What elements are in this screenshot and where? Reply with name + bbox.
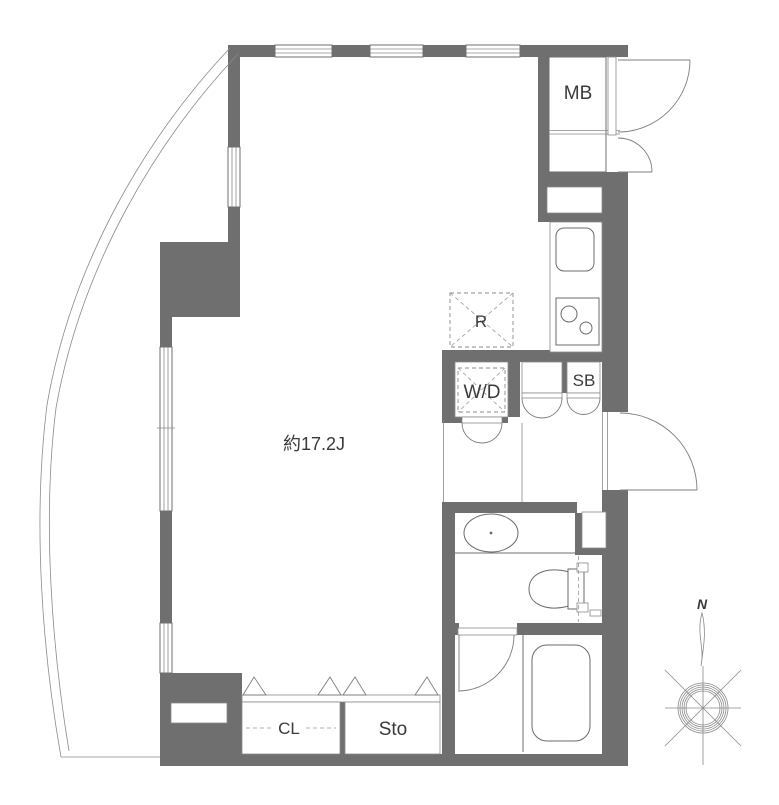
- wall-kitchen-band1: [538, 172, 602, 187]
- wall-cabinet-strip: [575, 513, 582, 553]
- washroom: [455, 512, 606, 553]
- kitchen: R: [450, 187, 602, 352]
- washbasin-drain: [490, 532, 493, 535]
- closet-fold-triangle-1: [243, 677, 266, 695]
- hallway: W/D SB: [444, 362, 601, 502]
- closet-fold-triangle-4: [415, 677, 438, 695]
- closet-fold-triangle-3: [343, 677, 366, 695]
- wall-toilet-top-strip: [575, 548, 603, 555]
- kitchen-niche: [547, 187, 602, 213]
- window-top-3: [466, 45, 520, 57]
- closet-cl: CL: [242, 702, 340, 754]
- stove-burner-small: [580, 322, 592, 334]
- bathroom: [458, 628, 590, 752]
- pillar: [160, 242, 240, 317]
- wd-door-arc-right: [482, 423, 502, 443]
- wall-wd-right: [508, 350, 520, 417]
- bath-door-arc: [458, 635, 514, 691]
- window-left-mid: [157, 347, 175, 511]
- closet-track: [242, 695, 440, 702]
- toilet-bowl: [529, 570, 569, 608]
- storage-sto: Sto: [345, 702, 440, 754]
- shoe-box-label: SB: [573, 371, 596, 390]
- shoe-box: SB: [567, 362, 600, 415]
- wall-left-upper: [228, 45, 240, 242]
- washroom-cabinet: [582, 512, 606, 548]
- stove: [556, 298, 599, 345]
- window-left-upper: [228, 147, 240, 207]
- mb-door-arc-large: [618, 60, 690, 132]
- wd-door-arc-left: [462, 423, 482, 443]
- washer-dryer-label: W/D: [464, 382, 501, 403]
- window-top-1: [275, 45, 332, 57]
- window-top-2: [370, 45, 423, 57]
- wall-cl-sto-divider: [340, 701, 345, 754]
- wall-hall-left: [442, 350, 455, 423]
- stove-burner-large: [561, 306, 577, 322]
- wall-bottom: [242, 754, 628, 766]
- meter-box-cabinet: [549, 57, 606, 172]
- floor-plan-drawing: MB R W/D: [0, 0, 779, 800]
- storage-label: Sto: [379, 719, 408, 740]
- shoe-box-track: [567, 393, 600, 398]
- toilet: [529, 556, 601, 622]
- room-area-label: 約17.2J: [283, 434, 345, 454]
- window-left-lower: [160, 623, 172, 673]
- washer-dryer-space: W/D: [455, 362, 508, 443]
- wall-sanitary-left: [442, 502, 455, 766]
- compass-needle: [700, 613, 705, 666]
- closet-fold-triangle-2: [318, 677, 341, 695]
- refrigerator-label: R: [475, 312, 487, 331]
- meter-box-label: MB: [564, 83, 593, 104]
- wall-closet-divider: [562, 362, 567, 393]
- balcony: [40, 48, 238, 757]
- balcony-outer-curve: [40, 48, 230, 757]
- mb-door-leaf: [608, 57, 616, 135]
- refrigerator-space: R: [450, 293, 513, 347]
- wall-kitchen-band2: [538, 213, 602, 222]
- entrance-opening: [602, 412, 628, 490]
- floor-plan-page: MB R W/D: [0, 0, 779, 800]
- closet-label: CL: [278, 719, 300, 738]
- wall-bath-band-right: [517, 623, 628, 635]
- wall-washroom-top: [442, 502, 577, 513]
- bathtub: [532, 645, 590, 741]
- hall-closet: [522, 362, 562, 418]
- wd-door-track: [462, 417, 502, 423]
- bath-door-track: [458, 628, 517, 635]
- kitchen-sink: [556, 228, 594, 271]
- compass-north-label: N: [697, 596, 708, 612]
- compass: N: [665, 596, 741, 765]
- hall-closet-track: [522, 393, 562, 398]
- entrance-door-arc: [620, 413, 697, 490]
- toilet-control: [590, 610, 601, 616]
- niche-bottom-left: [171, 703, 227, 723]
